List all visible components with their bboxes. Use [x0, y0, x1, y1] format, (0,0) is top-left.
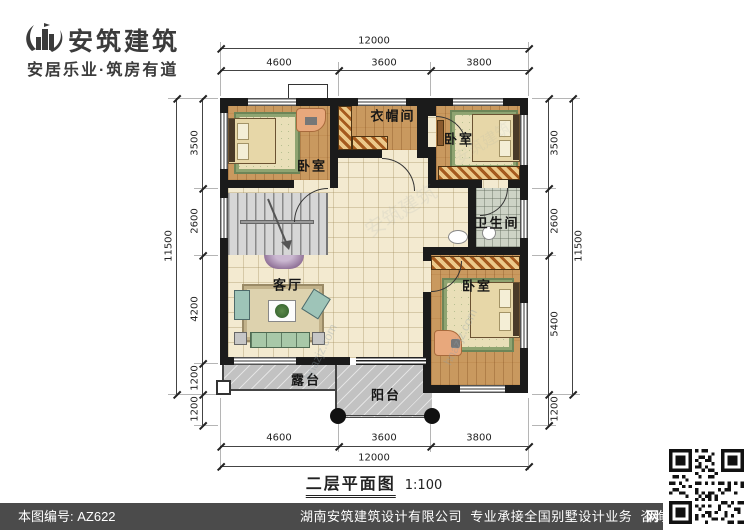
extension-line	[220, 398, 221, 470]
logo-title: 安筑建筑	[68, 22, 180, 58]
dim-label: 2600	[550, 208, 561, 233]
dim-tick	[525, 67, 533, 75]
dim-label: 4200	[190, 296, 201, 321]
extension-line	[194, 363, 218, 364]
extension-line	[532, 255, 556, 256]
balcony-column	[424, 408, 440, 424]
bedroom-tr-wardrobe	[438, 166, 520, 180]
window	[520, 303, 528, 348]
qr-code	[663, 443, 750, 530]
dim-label: 1200	[190, 396, 201, 421]
wall-cloakroom-right	[417, 106, 428, 158]
room-label-balcony: 阳台	[371, 385, 401, 404]
plant	[275, 304, 289, 318]
room-label-terrace: 露台	[291, 370, 321, 389]
dim-label: 5400	[550, 311, 561, 336]
wall-bedroom-tl-right	[330, 106, 338, 188]
dimension-line	[220, 70, 528, 71]
window	[248, 98, 296, 106]
bed-pillow	[499, 289, 511, 308]
bed-headboard	[513, 115, 519, 160]
window	[520, 115, 528, 165]
net-label: 网	[646, 503, 659, 530]
floorplan: 卧室 衣帽间 卧室 卫生间 卧室 客厅	[220, 98, 528, 394]
dim-label: 1200	[550, 396, 561, 421]
plan-caption-title: 二层平面图	[306, 470, 396, 498]
logo-tagline: 安居乐业·筑房有道	[27, 56, 178, 80]
extension-line	[338, 62, 339, 96]
dim-tick	[525, 463, 533, 471]
dim-label: 3500	[550, 130, 561, 155]
company-name: 湖南安筑建筑设计有限公司	[300, 509, 462, 524]
dim-label: 4600	[266, 58, 291, 69]
hall-washbasin	[448, 230, 468, 244]
drawing-number: 本图编号: AZ622	[18, 503, 116, 530]
window	[234, 357, 296, 365]
extension-line	[430, 62, 431, 96]
page: 安筑建筑 安居乐业·筑房有道	[0, 0, 750, 530]
armchair-left	[234, 290, 250, 320]
cloakroom-wardrobe	[352, 136, 388, 150]
dim-label: 11500	[164, 230, 175, 262]
window	[220, 113, 228, 169]
wall-bedroom-br-left	[423, 255, 431, 261]
wall-cloakroom-bottom	[338, 150, 382, 158]
bed-pillow	[499, 120, 511, 137]
room-label-living: 客厅	[273, 275, 303, 294]
dim-label: 11500	[574, 230, 585, 262]
room-label-bathroom: 卫生间	[474, 213, 519, 232]
plan-caption-scale: 1:100	[405, 478, 442, 493]
wall-bedroom-tl-bottom	[228, 180, 294, 188]
dim-label: 12000	[358, 36, 390, 47]
extension-line	[194, 425, 218, 426]
dim-label: 2600	[190, 208, 201, 233]
room-label-cloakroom: 衣帽间	[370, 106, 415, 125]
dim-label: 3800	[466, 58, 491, 69]
bed-pillow	[499, 140, 511, 157]
footer-bar: 本图编号: AZ622 湖南安筑建筑设计有限公司 专业承接全国别墅设计业务 咨询…	[0, 503, 750, 530]
dimension-line	[176, 98, 177, 394]
window	[520, 200, 528, 238]
wall-bedroom-tr-bottom	[508, 180, 520, 188]
bed-pillow	[237, 143, 249, 160]
dim-label: 4600	[266, 433, 291, 444]
room-label-bedroom-tr: 卧室	[444, 129, 474, 148]
side-table	[312, 332, 325, 345]
balcony-sliding-door	[356, 357, 426, 365]
bed-pillow	[499, 312, 511, 331]
extension-line	[194, 255, 218, 256]
dim-tick	[525, 443, 533, 451]
dim-label: 1200	[190, 365, 201, 390]
desk-monitor	[305, 117, 317, 125]
wall-bedroom-tr-bottom	[428, 180, 482, 188]
window	[220, 198, 228, 238]
cloakroom-wardrobe	[338, 106, 352, 150]
dim-tick	[525, 45, 533, 53]
bedroom-br-desk	[434, 330, 462, 356]
bedroom-tr-bed	[472, 114, 520, 162]
sofa-main	[250, 332, 310, 348]
bed-headboard	[513, 283, 519, 336]
company-service: 专业承接全国别墅设计业务	[470, 509, 632, 524]
extension-line	[528, 398, 529, 470]
bed-headboard	[229, 119, 235, 162]
terrace-column	[216, 380, 231, 395]
room-label-bedroom-tl: 卧室	[297, 156, 327, 175]
dimension-line	[220, 466, 528, 467]
dim-label: 12000	[358, 453, 390, 464]
dim-label: 3600	[371, 58, 396, 69]
dimension-line	[220, 48, 528, 49]
bedroom-tl-bed	[228, 118, 276, 164]
side-table	[234, 332, 247, 345]
extension-line	[194, 188, 218, 189]
extension-line	[532, 188, 556, 189]
extension-line	[532, 425, 556, 426]
bed-pillow	[237, 123, 249, 140]
building-logo-icon	[22, 18, 66, 56]
wall-bedroom-br-top	[423, 247, 520, 255]
dim-label: 3800	[466, 433, 491, 444]
balcony-column	[330, 408, 346, 424]
wall-bedroom-br-left	[423, 292, 431, 393]
desk-chair	[451, 339, 460, 348]
dim-label: 3600	[371, 433, 396, 444]
dimension-line	[220, 446, 528, 447]
dim-label: 3500	[190, 130, 201, 155]
qr-code-pattern	[666, 446, 747, 527]
window	[460, 385, 505, 393]
wall-bedroom-tr-left	[428, 106, 436, 116]
room-label-bedroom-br: 卧室	[462, 276, 492, 295]
plan-caption: 二层平面图 1:100	[306, 470, 442, 498]
dimension-line	[202, 98, 203, 425]
window	[453, 98, 503, 106]
